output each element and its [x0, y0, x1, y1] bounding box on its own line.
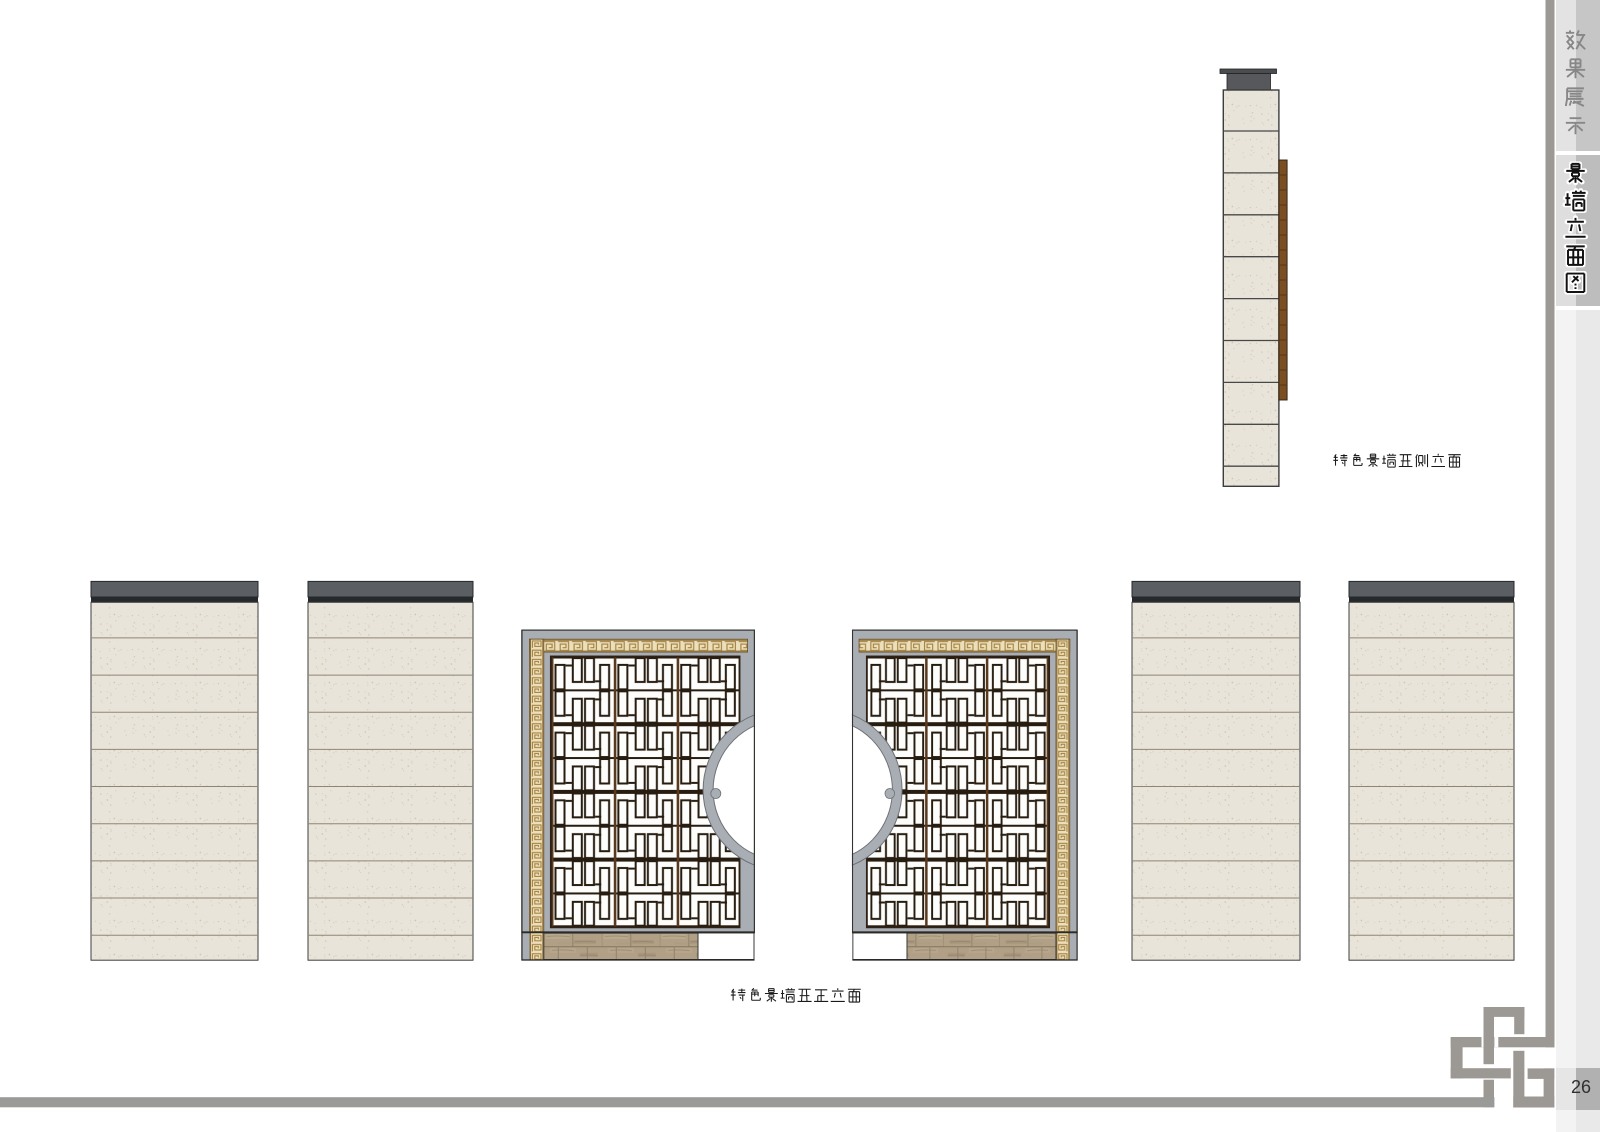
svg-text:26: 26 — [1571, 1077, 1591, 1097]
